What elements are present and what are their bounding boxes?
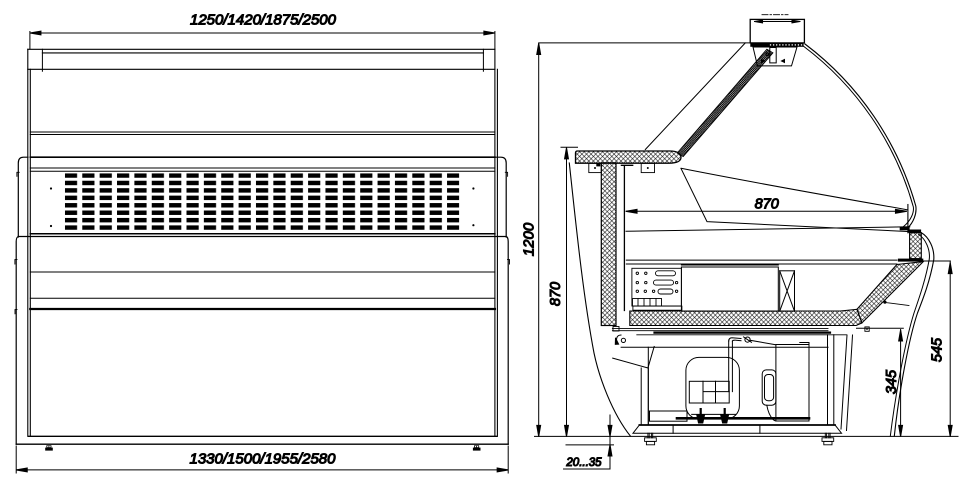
svg-text:870: 870 — [755, 197, 779, 213]
svg-text:20...35: 20...35 — [565, 457, 602, 469]
svg-text:870: 870 — [548, 282, 564, 306]
svg-text:1250/1420/1875/2500: 1250/1420/1875/2500 — [190, 12, 337, 29]
svg-text:345: 345 — [884, 369, 900, 394]
svg-text:545: 545 — [930, 337, 946, 362]
svg-text:1330/1500/1955/2580: 1330/1500/1955/2580 — [190, 451, 337, 468]
svg-text:1200: 1200 — [521, 222, 538, 256]
